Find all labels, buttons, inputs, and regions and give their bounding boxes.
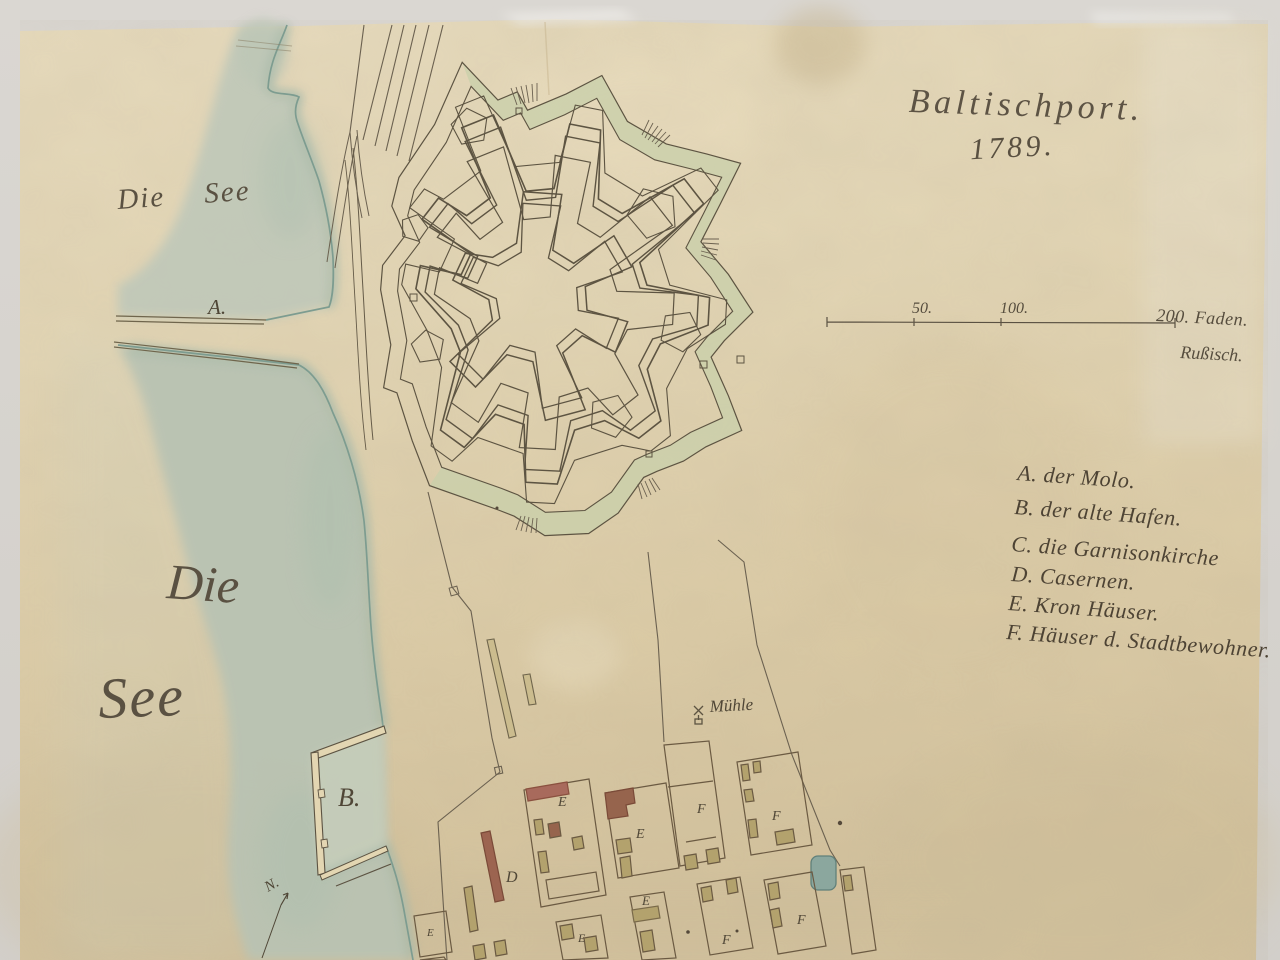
svg-text:1789.: 1789. [969,129,1056,166]
svg-text:Mühle: Mühle [708,695,754,716]
svg-text:E: E [641,893,650,908]
svg-text:B.: B. [338,783,360,812]
svg-text:See: See [97,663,186,731]
svg-text:Rußisch.: Rußisch. [1179,342,1243,365]
svg-text:50.: 50. [912,300,932,317]
svg-text:100.: 100. [1000,300,1028,317]
svg-text:E: E [557,795,567,810]
svg-text:Die: Die [164,553,241,614]
svg-text:E: E [635,827,645,842]
svg-text:F: F [721,933,731,948]
svg-text:F: F [796,913,806,928]
svg-text:F: F [771,809,781,824]
svg-text:E: E [426,927,434,939]
svg-text:E: E [577,931,586,945]
svg-text:D: D [505,869,518,886]
svg-text:F: F [696,802,706,817]
svg-text:A.: A. [206,295,226,319]
